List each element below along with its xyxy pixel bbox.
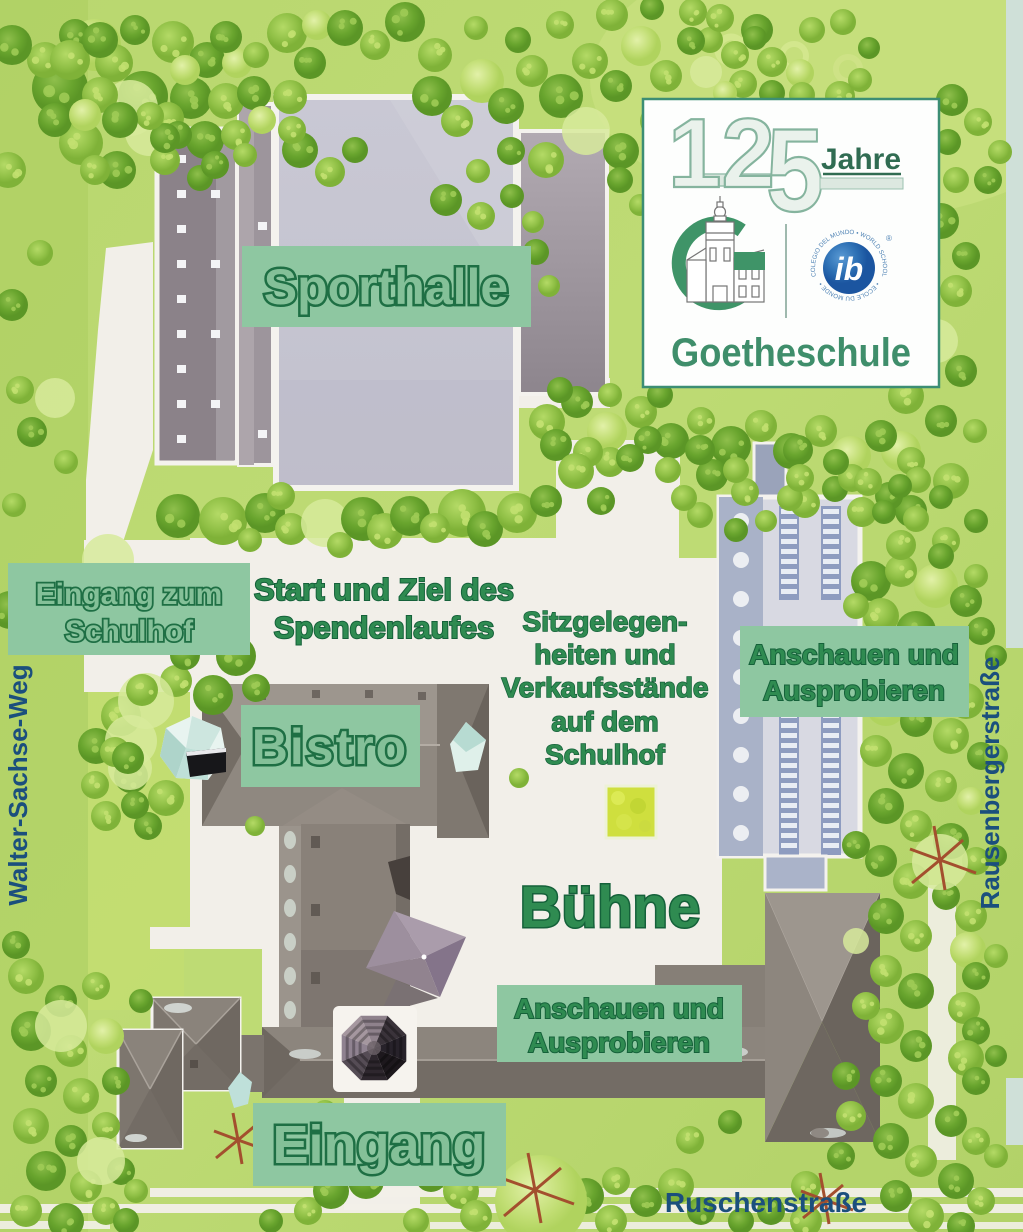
svg-text:Bühne: Bühne xyxy=(520,875,700,940)
svg-text:Sporthalle: Sporthalle xyxy=(264,259,508,315)
svg-text:Spendenlaufes: Spendenlaufes xyxy=(274,610,495,645)
svg-text:Eingang zum: Eingang zum xyxy=(36,578,223,611)
svg-text:Ausprobieren: Ausprobieren xyxy=(763,675,945,706)
svg-text:Anschauen und: Anschauen und xyxy=(749,639,959,670)
svg-text:Schulhof: Schulhof xyxy=(65,615,194,648)
svg-text:Schulhof: Schulhof xyxy=(545,739,665,770)
svg-text:Anschauen und: Anschauen und xyxy=(514,993,724,1024)
svg-text:Goetheschule: Goetheschule xyxy=(671,331,911,375)
svg-text:12: 12 xyxy=(668,98,775,208)
svg-text:Start und Ziel des: Start und Ziel des xyxy=(254,572,514,607)
svg-text:Verkaufsstände: Verkaufsstände xyxy=(502,672,709,703)
svg-text:Walter-Sachse-Weg: Walter-Sachse-Weg xyxy=(3,664,33,905)
svg-text:Rausenbergerstraße: Rausenbergerstraße xyxy=(975,657,1005,910)
svg-text:5: 5 xyxy=(766,105,824,237)
svg-text:ib: ib xyxy=(835,251,863,287)
svg-text:auf dem: auf dem xyxy=(551,706,658,737)
svg-text:Eingang: Eingang xyxy=(273,1115,486,1175)
svg-text:heiten und: heiten und xyxy=(534,639,676,670)
svg-text:Jahre: Jahre xyxy=(821,143,901,176)
svg-text:Ruschenstraße: Ruschenstraße xyxy=(665,1187,867,1218)
svg-text:Sitzgelegen-: Sitzgelegen- xyxy=(523,606,688,637)
svg-text:®: ® xyxy=(886,234,892,243)
svg-text:Bistro: Bistro xyxy=(252,719,408,775)
svg-text:Ausprobieren: Ausprobieren xyxy=(528,1027,710,1058)
